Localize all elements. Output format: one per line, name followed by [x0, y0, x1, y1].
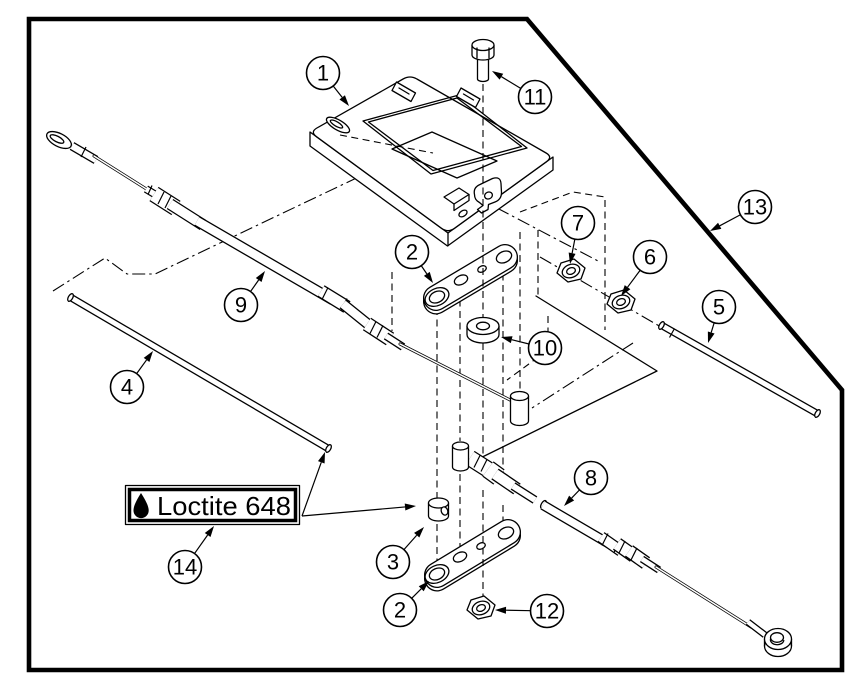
hex-nut-part-7: [557, 259, 585, 282]
callout-number: 7: [572, 211, 584, 236]
callout-number: 9: [235, 293, 247, 318]
spacer-washer-part-10: [467, 318, 499, 344]
hex-nut-part-6: [607, 290, 635, 313]
callout-10: 10: [501, 332, 562, 365]
loctite-label-text: Loctite 648: [157, 491, 291, 521]
callout-number: 2: [394, 598, 406, 623]
callout-number: 2: [406, 240, 418, 265]
hex-bolt-part-11: [472, 40, 494, 82]
callout-number: 11: [524, 85, 547, 110]
callout-number: 13: [743, 195, 767, 220]
callout-11: 11: [492, 71, 552, 114]
callout-5: 5: [703, 291, 736, 344]
callout-number: 5: [713, 295, 725, 320]
callout-13: 13: [710, 191, 772, 232]
callout-number: 8: [585, 466, 597, 491]
callout-number: 12: [535, 599, 559, 624]
loctite-leader-lines: [302, 452, 416, 516]
callout-14: 14: [169, 526, 215, 584]
callout-number: 14: [173, 555, 197, 580]
link-plate-part-2-upper: [422, 249, 513, 310]
callout-4: 4: [111, 351, 154, 404]
callout-3: 3: [377, 527, 425, 579]
exploded-parts-drawing: Loctite 648 11113762951048314212: [0, 0, 858, 700]
callout-number: 6: [644, 245, 656, 270]
callout-9: 9: [225, 271, 266, 322]
rod-part-4: [66, 293, 332, 453]
callout-2a: 2: [396, 236, 434, 284]
pivot-cylinder-part-3: [429, 498, 449, 521]
pivot-pin-upper: [511, 392, 529, 426]
loctite-label: Loctite 648: [126, 486, 300, 525]
pivot-pin-lower: [453, 442, 469, 471]
callout-8: 8: [564, 462, 608, 507]
link-plate-part-2-lower: [422, 525, 515, 587]
cable-eyelet-end: [765, 629, 792, 657]
diagram-canvas: Loctite 648 11113762951048314212: [0, 0, 858, 700]
callout-number: 1: [317, 61, 329, 86]
callout-number: 4: [121, 375, 133, 400]
callout-7: 7: [562, 207, 595, 265]
callout-1: 1: [307, 57, 350, 107]
callout-6: 6: [621, 241, 667, 297]
callout-2b: 2: [384, 581, 430, 627]
callout-12: 12: [495, 595, 564, 628]
callout-number: 3: [387, 550, 399, 575]
hex-nut-part-12: [467, 596, 495, 619]
callout-number: 10: [533, 336, 557, 361]
